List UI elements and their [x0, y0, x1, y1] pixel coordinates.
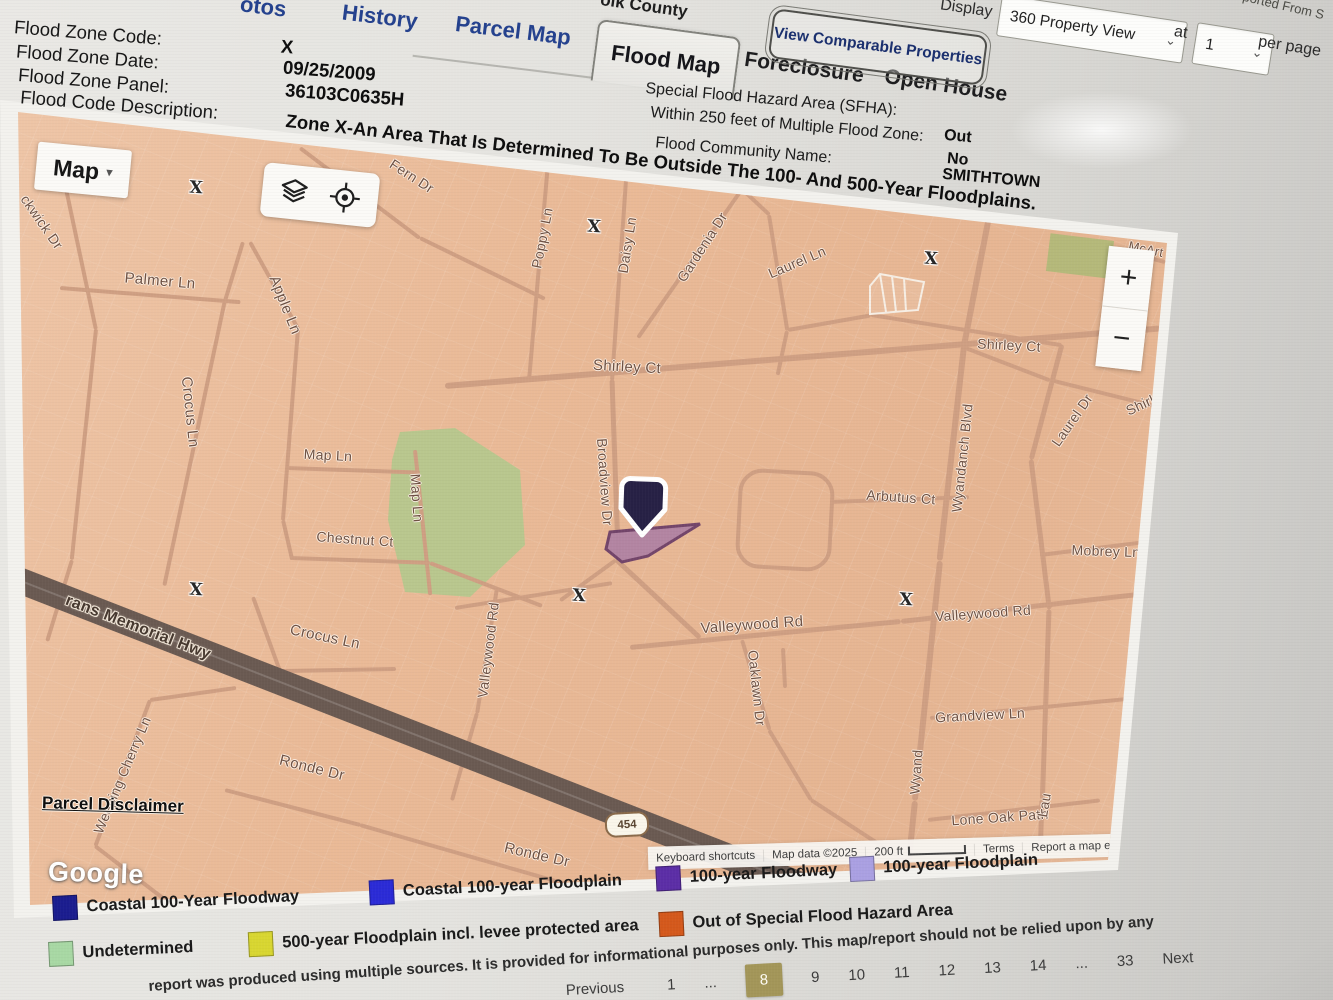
- street-label: Mobrey Ln: [1071, 542, 1140, 560]
- street-label: Map Ln: [303, 446, 352, 465]
- street-label: Shirley Ct: [977, 335, 1041, 354]
- parcel-disclaimer-link[interactable]: Parcel Disclaimer: [42, 793, 184, 817]
- legend-color-swatch: [48, 941, 74, 967]
- parcel-outline-shape: [866, 270, 928, 320]
- layers-icon[interactable]: [278, 176, 311, 209]
- map-type-button[interactable]: Map ▾: [34, 142, 132, 199]
- flood-zone-code-value: X: [280, 36, 294, 59]
- pagination-page[interactable]: 9: [811, 969, 820, 986]
- flood-zone-x-marker[interactable]: X: [587, 217, 602, 238]
- at-label: at: [1173, 23, 1189, 43]
- street-label: Map Ln: [407, 473, 426, 522]
- flood-zone-x-marker[interactable]: X: [924, 249, 939, 270]
- flood-zone-x-marker[interactable]: X: [189, 178, 204, 199]
- flood-zone-x-marker[interactable]: X: [572, 586, 587, 607]
- zoom-out-button[interactable]: −: [1095, 306, 1147, 371]
- property-pin[interactable]: [617, 475, 669, 539]
- caret-down-icon: ▾: [105, 164, 113, 181]
- google-logo[interactable]: Google: [47, 856, 144, 890]
- legend-color-swatch: [658, 911, 684, 937]
- sfha-value: Out: [943, 127, 972, 147]
- legend-color-swatch: [248, 931, 274, 957]
- street-label: Wyand: [906, 749, 925, 795]
- zoom-in-button[interactable]: +: [1102, 246, 1155, 312]
- legend-color-swatch: [849, 856, 875, 882]
- flood-zone-x-marker[interactable]: X: [899, 590, 914, 611]
- pagination-previous[interactable]: Previous: [565, 979, 624, 999]
- pagination-page-current[interactable]: 8: [745, 963, 783, 998]
- screen-photo: rans Memorial Hwy 454 Fern Dr ckwick Dr …: [0, 0, 1333, 1000]
- pagination-page[interactable]: 33: [1116, 952, 1134, 970]
- legend-color-swatch: [368, 879, 394, 905]
- legend-color-swatch: [655, 865, 681, 891]
- pagination-page[interactable]: 1: [667, 976, 676, 993]
- pagination-page[interactable]: 12: [938, 962, 956, 980]
- park-area-small: [1046, 233, 1114, 279]
- pagination-next[interactable]: Next: [1162, 949, 1194, 968]
- pagination-page[interactable]: 13: [984, 959, 1002, 977]
- road-loop: [734, 468, 835, 573]
- pagination-page[interactable]: 14: [1029, 957, 1047, 975]
- my-location-icon[interactable]: [327, 180, 362, 215]
- legend-color-swatch: [52, 895, 78, 921]
- pagination-page[interactable]: 10: [848, 966, 866, 984]
- flood-zone-x-marker[interactable]: X: [189, 580, 204, 601]
- pagination-ellipsis: ...: [1075, 955, 1088, 973]
- pagination-ellipsis: ...: [704, 974, 717, 992]
- street-label: Shirley Ct: [593, 357, 662, 378]
- pagination-page[interactable]: 11: [894, 964, 910, 982]
- route-454-badge: 454: [604, 811, 649, 838]
